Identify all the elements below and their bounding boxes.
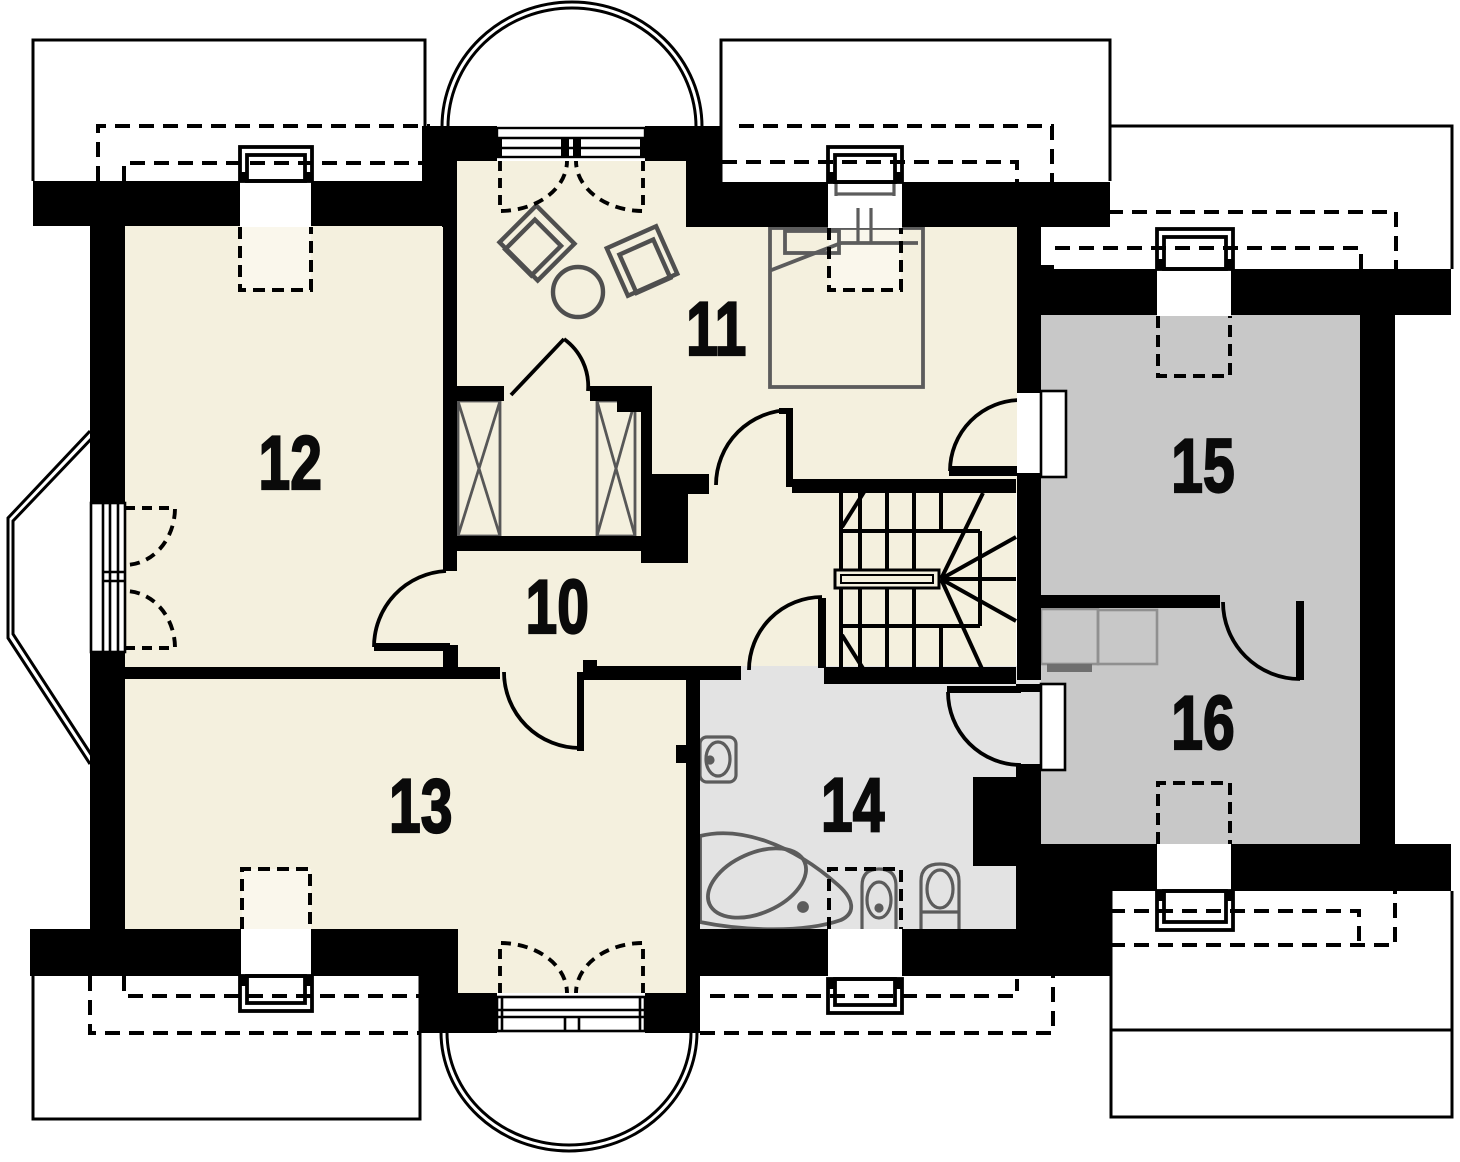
svg-text:15: 15 (1171, 424, 1234, 509)
svg-text:16: 16 (1171, 681, 1234, 766)
svg-text:12: 12 (259, 421, 322, 506)
svg-text:10: 10 (526, 565, 589, 650)
svg-text:13: 13 (389, 764, 452, 849)
svg-text:11: 11 (686, 287, 746, 372)
svg-text:14: 14 (821, 763, 884, 848)
